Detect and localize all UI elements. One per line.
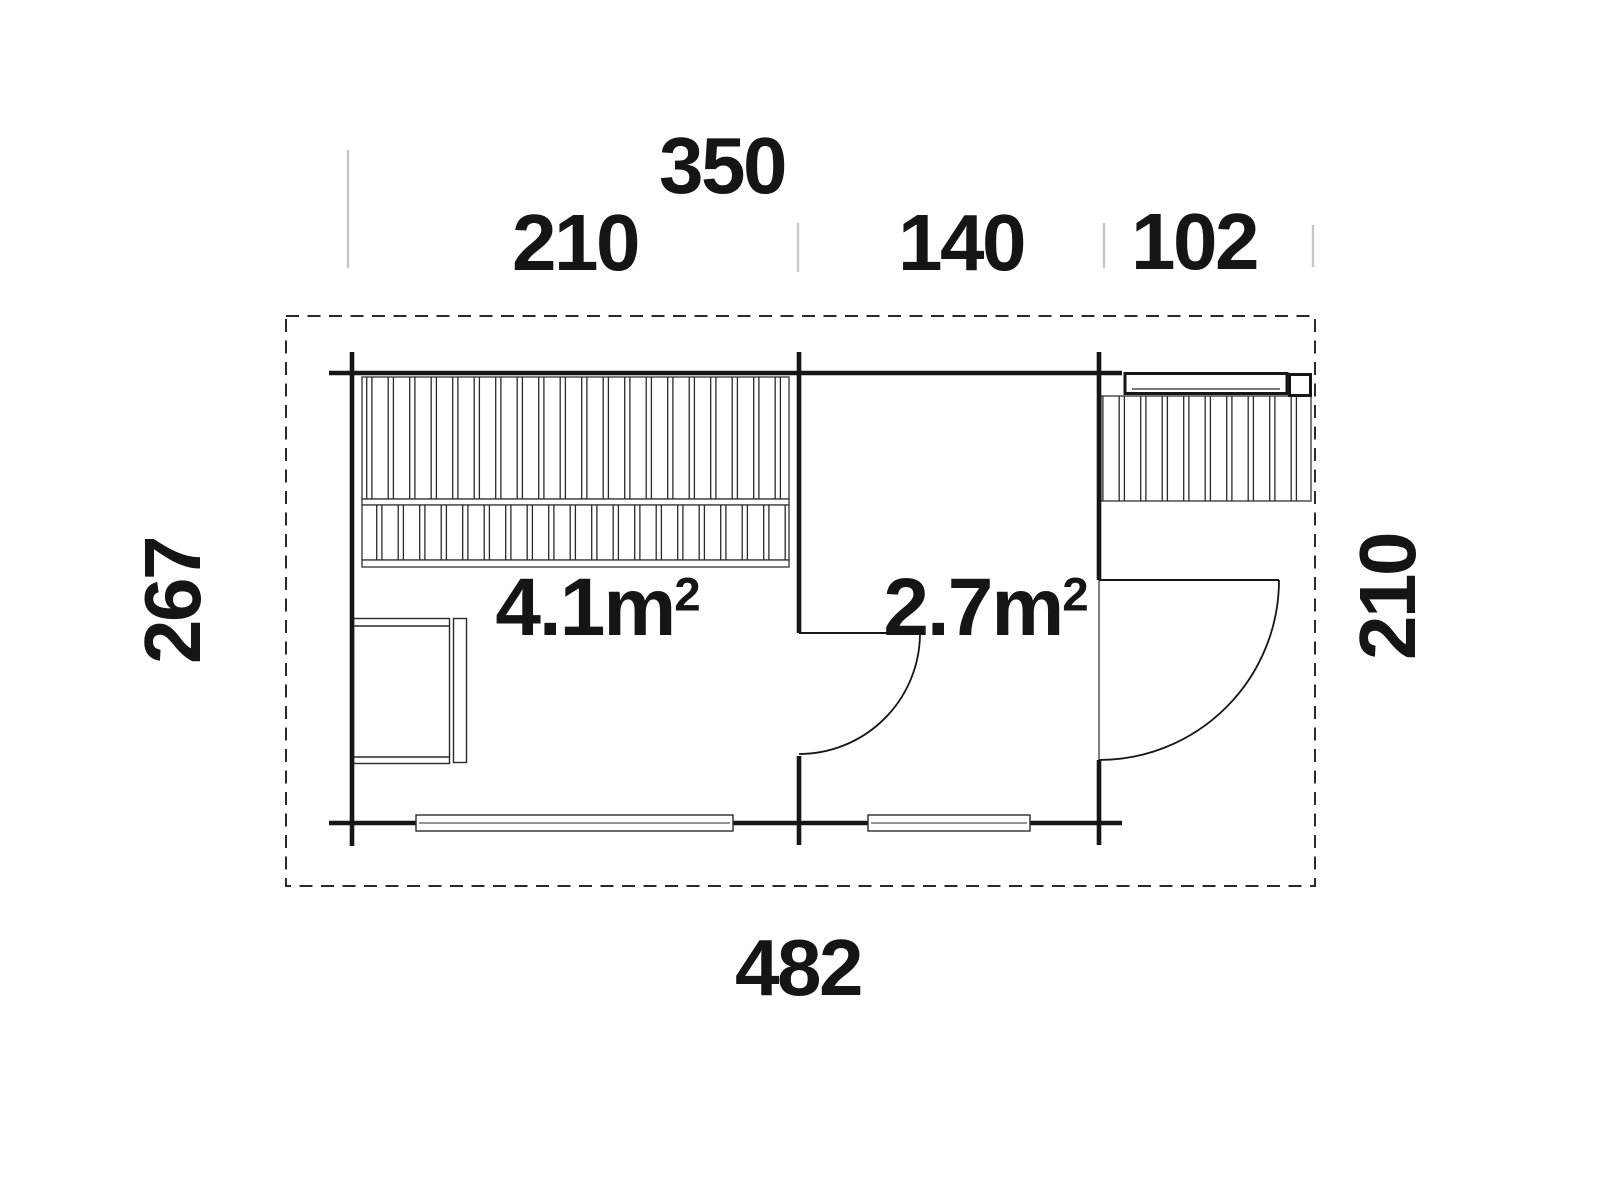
floor-plan-page: 350 210 140 102 482 267 210 4.1m2 2.7m2 bbox=[0, 0, 1600, 1200]
dim-right-height-label: 210 bbox=[1342, 534, 1434, 660]
room1-area-label: 4.1m2 bbox=[495, 561, 700, 655]
bench-divider bbox=[362, 499, 789, 505]
dim-top-mid-section-label: 140 bbox=[898, 197, 1024, 289]
room2-area-value: 2.7 bbox=[883, 562, 991, 653]
porch-deck bbox=[1101, 374, 1311, 502]
side-bench-plank bbox=[454, 619, 467, 763]
bench-lower-slats bbox=[362, 505, 789, 560]
sauna-bench-platform bbox=[362, 377, 789, 567]
room2-area-label: 2.7m2 bbox=[883, 561, 1088, 655]
bench-upper-slats bbox=[362, 377, 789, 499]
dim-bottom-total-label: 482 bbox=[735, 922, 861, 1014]
room1-area-unit: m bbox=[603, 562, 674, 653]
exterior-door-swing-arc bbox=[1099, 580, 1279, 760]
dim-top-left-section-label: 210 bbox=[512, 197, 638, 289]
exterior-door bbox=[1099, 580, 1279, 760]
room1-area-value: 4.1 bbox=[495, 562, 603, 653]
room2-area-unit: m bbox=[991, 562, 1062, 653]
side-bench-body bbox=[354, 619, 450, 764]
room1-area-superscript: 2 bbox=[674, 568, 700, 621]
windows bbox=[416, 815, 1030, 831]
side-bench bbox=[354, 619, 467, 764]
porch-handrail bbox=[1125, 374, 1287, 394]
porch-slats bbox=[1101, 396, 1311, 501]
porch-post bbox=[1290, 375, 1311, 396]
dim-top-total-label: 350 bbox=[659, 120, 785, 212]
dim-left-height-label: 267 bbox=[127, 538, 219, 664]
room2-area-superscript: 2 bbox=[1062, 568, 1088, 621]
dim-top-right-section-label: 102 bbox=[1131, 196, 1257, 288]
